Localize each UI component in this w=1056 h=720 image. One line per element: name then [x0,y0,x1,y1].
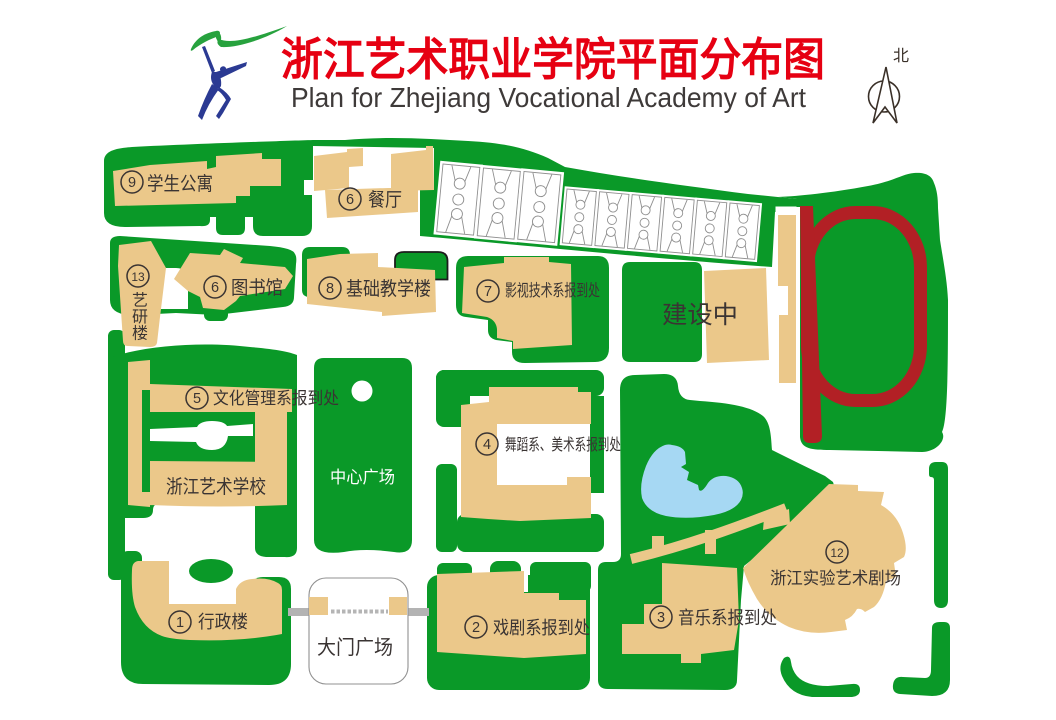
svg-text:戏剧系报到处: 戏剧系报到处 [493,618,590,638]
svg-text:9: 9 [128,175,136,191]
svg-text:1: 1 [176,615,184,631]
svg-text:2: 2 [472,620,480,636]
svg-text:3: 3 [657,610,665,626]
svg-text:图书馆: 图书馆 [231,277,283,299]
svg-text:舞蹈系、美术系报到处: 舞蹈系、美术系报到处 [505,436,621,454]
svg-text:行政楼: 行政楼 [198,612,248,632]
svg-text:音乐系报到处: 音乐系报到处 [678,608,777,628]
svg-text:楼: 楼 [132,325,148,343]
svg-text:Plan for Zhejiang Vocational A: Plan for Zhejiang Vocational Academy of … [291,82,806,113]
svg-text:12: 12 [830,546,844,560]
svg-text:6: 6 [211,280,219,296]
svg-text:浙江艺术学校: 浙江艺术学校 [166,476,266,498]
svg-text:4: 4 [483,437,491,453]
svg-text:学生公寓: 学生公寓 [147,173,213,195]
svg-text:5: 5 [193,391,201,407]
svg-text:影视技术系报到处: 影视技术系报到处 [505,281,600,300]
svg-text:6: 6 [346,192,354,208]
svg-text:中心广场: 中心广场 [330,468,395,487]
svg-text:浙江艺术职业学院平面分布图: 浙江艺术职业学院平面分布图 [281,34,825,85]
svg-text:8: 8 [326,281,334,297]
svg-text:大门广场: 大门广场 [317,636,393,659]
svg-text:建设中: 建设中 [662,301,738,329]
svg-text:基础教学楼: 基础教学楼 [346,278,431,300]
svg-text:艺: 艺 [132,292,148,310]
svg-text:北: 北 [893,47,909,65]
svg-text:7: 7 [484,284,492,300]
svg-text:13: 13 [131,270,145,284]
svg-text:研: 研 [132,309,148,326]
svg-text:浙江实验艺术剧场: 浙江实验艺术剧场 [770,569,901,588]
svg-text:餐厅: 餐厅 [368,189,402,211]
svg-text:文化管理系报到处: 文化管理系报到处 [213,389,339,408]
